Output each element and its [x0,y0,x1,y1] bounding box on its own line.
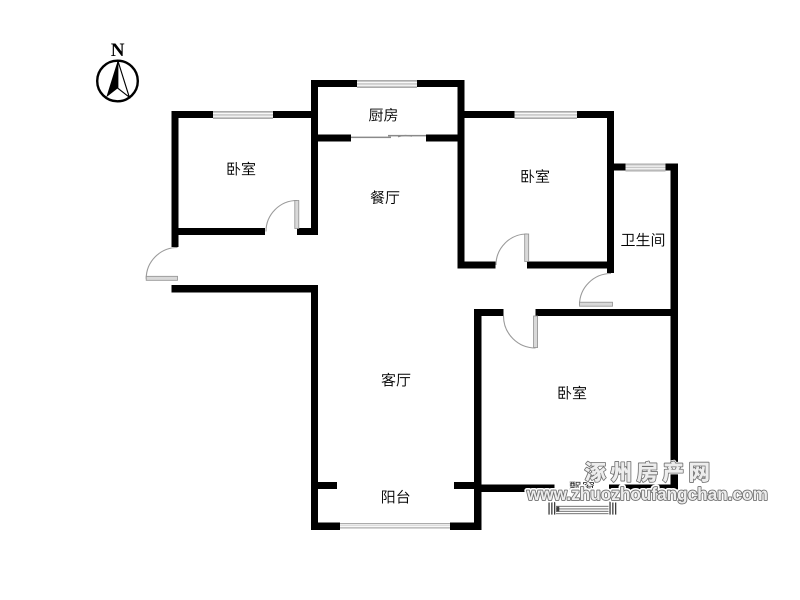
svg-text:www.zhuozhoufangchan.com: www.zhuozhoufangchan.com [526,484,768,504]
